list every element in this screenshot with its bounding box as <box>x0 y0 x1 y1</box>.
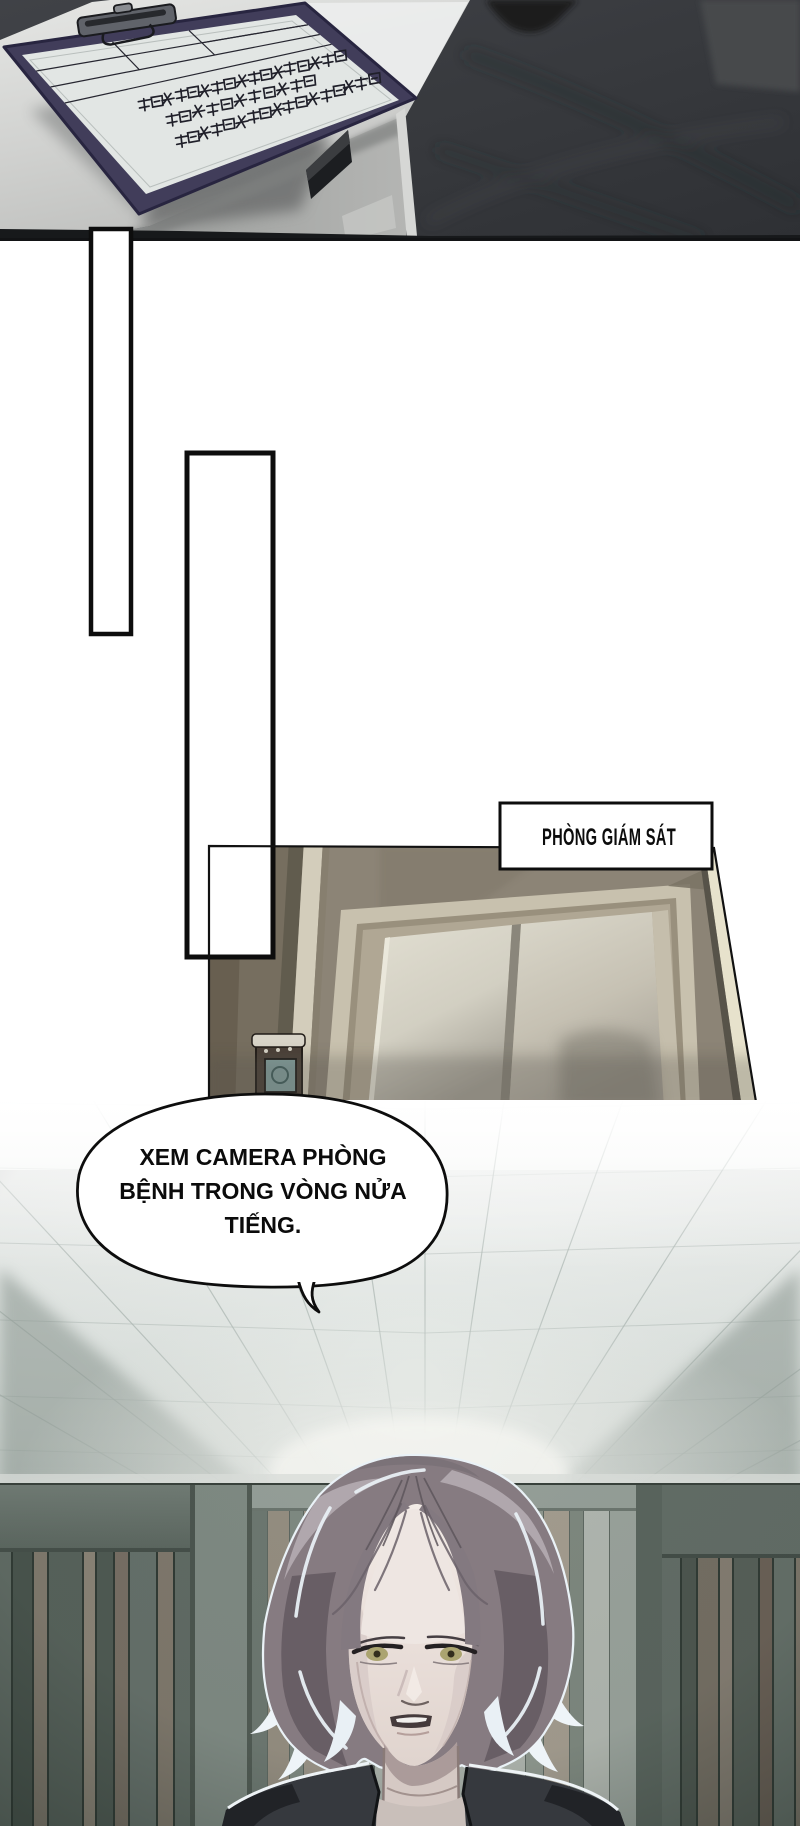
svg-text:PHÒNG GIÁM SÁT: PHÒNG GIÁM SÁT <box>542 822 676 851</box>
svg-text:TIẾNG.: TIẾNG. <box>225 1211 302 1238</box>
svg-text:XEM CAMERA PHÒNG: XEM CAMERA PHÒNG <box>139 1143 386 1170</box>
svg-text:BỆNH TRONG VÒNG NỬA: BỆNH TRONG VÒNG NỬA <box>119 1176 406 1204</box>
